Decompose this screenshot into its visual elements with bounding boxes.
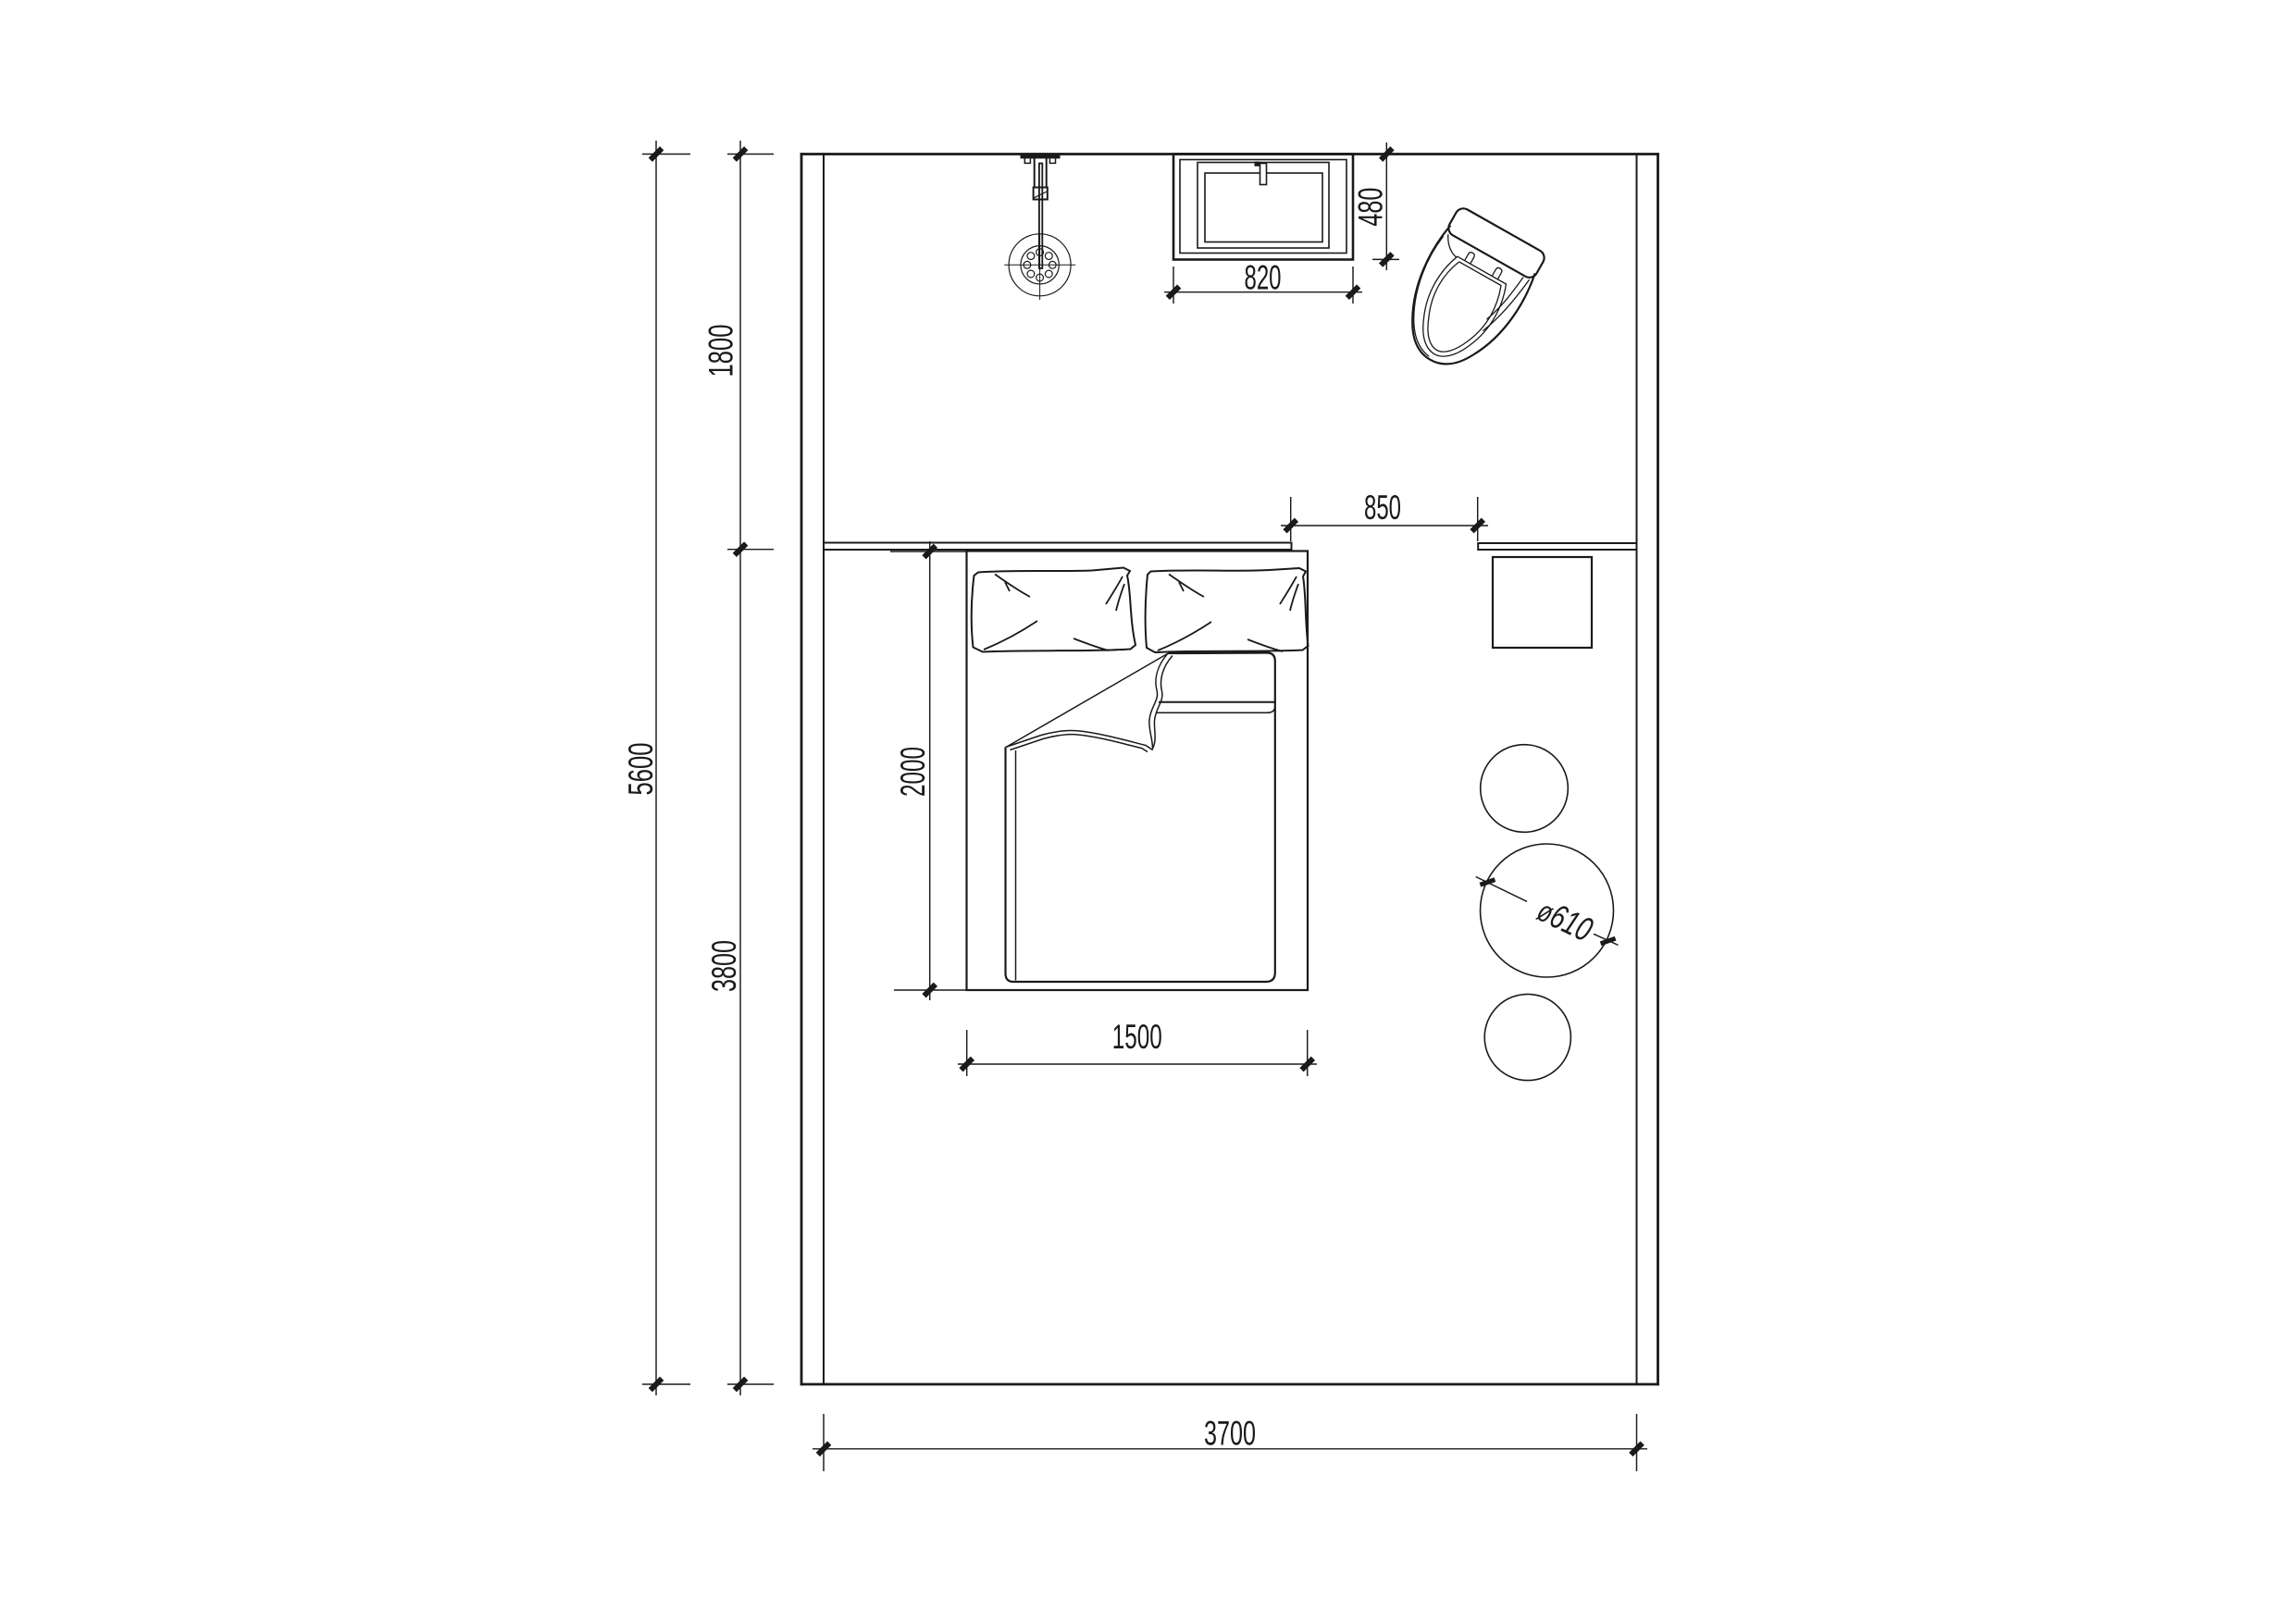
svg-text:1500: 1500	[1112, 1018, 1162, 1056]
svg-text:3700: 3700	[1204, 1415, 1256, 1453]
svg-text:2000: 2000	[894, 747, 932, 797]
svg-text:820: 820	[1245, 259, 1282, 297]
svg-text:1800: 1800	[702, 325, 740, 378]
svg-text:480: 480	[1352, 188, 1390, 227]
svg-text:3800: 3800	[705, 940, 743, 992]
svg-text:850: 850	[1364, 489, 1401, 527]
svg-text:5600: 5600	[622, 743, 660, 796]
